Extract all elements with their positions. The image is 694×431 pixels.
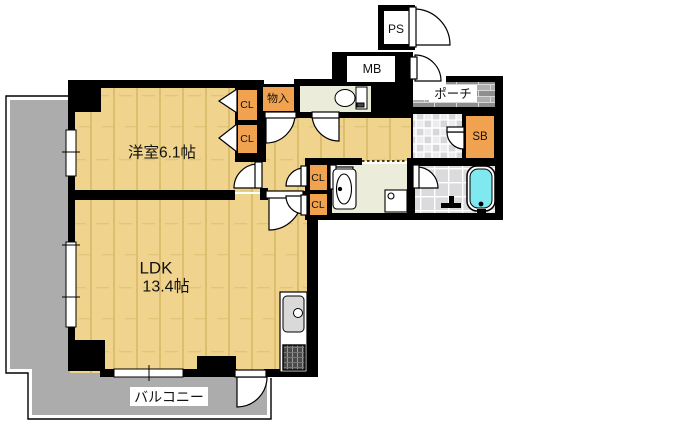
floor-plan: 洋室6.1帖 LDK 13.4帖 バルコニー ポーチ PS MB SB 物入 C… [0,0,694,431]
western-room-label: 洋室6.1帖 [128,144,196,162]
kitchen-counter [280,292,307,372]
balcony-door-leaf [235,370,266,377]
ldk-label-line1: LDK [139,259,173,278]
ldk-label-line2: 13.4帖 [142,278,189,296]
bathroom-door-leaf [413,165,419,188]
porch-label: ポーチ [434,87,472,101]
bathtub [467,166,495,216]
stove [283,345,305,370]
floor-plan-canvas: 洋室6.1帖 LDK 13.4帖 バルコニー ポーチ PS MB SB 物入 C… [0,0,694,431]
entry-door-leaf [447,127,464,132]
window-ldk-left [66,242,76,327]
storage-label: 物入 [267,91,289,105]
closet-3-label: CL [311,172,325,184]
toilet-door-leaf [312,112,339,118]
meter-box-label: MB [363,62,382,76]
front-door-leaf [410,57,417,79]
storage-door-leaf [265,112,296,118]
front-door-arc [415,55,441,81]
closet-1-label: CL [240,99,254,111]
closet-2-label: CL [240,133,254,145]
western-room-door-leaf [255,162,262,188]
shoe-box-label: SB [472,131,488,143]
kitchen-faucet-icon [294,309,303,318]
balcony-label: バルコニー [134,389,204,405]
washbasin [333,169,356,209]
washing-machine [385,190,407,212]
entrance-outer-door-leaf [409,7,416,47]
closet-3-door-leaf [301,166,307,186]
closet-4-door-leaf [301,195,307,215]
window-western-left [66,130,76,176]
entrance-outer-door-arc [414,9,450,45]
closet-4-label: CL [311,199,325,211]
pipe-space-label: PS [388,22,404,36]
